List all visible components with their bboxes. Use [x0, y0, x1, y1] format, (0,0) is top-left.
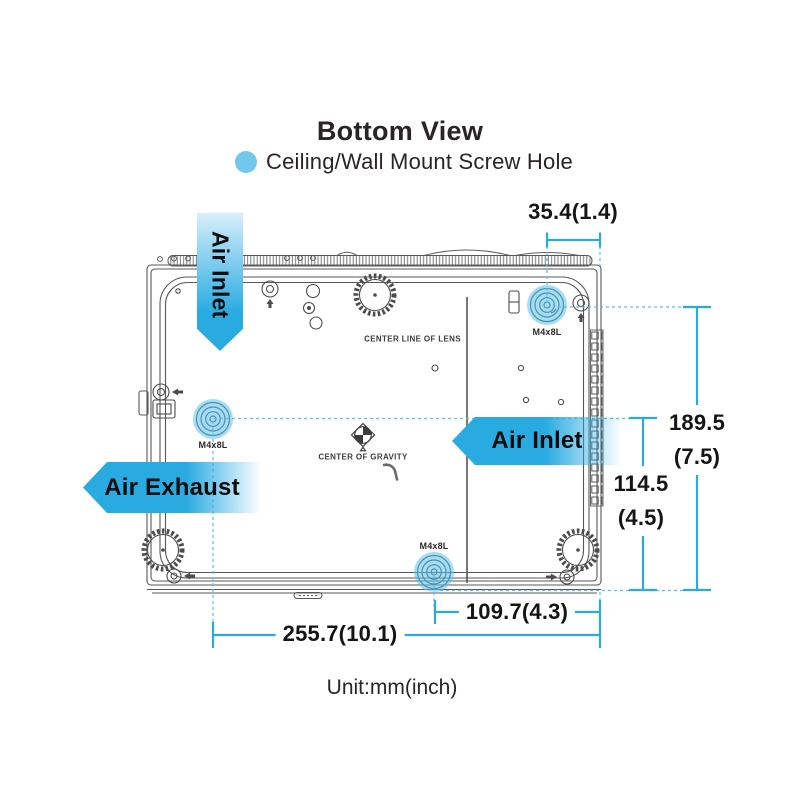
screw-label-bottom: M4x8L [419, 541, 448, 551]
dimension-right-outer-mm: 189.5 [669, 406, 725, 440]
dimension-right-inner-mm: 114.5 [614, 467, 669, 501]
legend: Ceiling/Wall Mount Screw Hole [4, 149, 800, 175]
screw-hole-legend-dot-icon [235, 151, 257, 173]
air-inlet-right-arrow: Air Inlet [452, 417, 622, 465]
dimension-bottom-outer: 255.7(10.1) [276, 616, 405, 652]
center-line-of-lens-label: CENTER LINE OF LENS [364, 335, 461, 344]
air-inlet-right-label: Air Inlet [491, 427, 582, 455]
dimension-bottom-inner: 109.7(4.3) [459, 594, 575, 630]
bottom-view-diagram: Bottom View Ceiling/Wall Mount Screw Hol… [0, 0, 800, 800]
legend-label: Ceiling/Wall Mount Screw Hole [266, 149, 573, 175]
page-title: Bottom View [0, 116, 800, 147]
dimension-right-outer-inch: (7.5) [669, 440, 725, 474]
screw-label-mid-left: M4x8L [198, 440, 227, 450]
center-of-gravity-label: CENTER OF GRAVITY [318, 453, 407, 462]
hex-key-mark [384, 465, 397, 480]
air-exhaust-label: Air Exhaust [104, 474, 240, 502]
unit-note: Unit:mm(inch) [327, 676, 458, 700]
air-inlet-top-arrow: Air Inlet [197, 213, 243, 351]
center-of-gravity-icon [352, 424, 375, 451]
foot-gear-top [356, 276, 394, 314]
screw-label-top-right: M4x8L [532, 327, 561, 337]
air-exhaust-arrow: Air Exhaust [83, 462, 261, 513]
dimension-right-inner-inch: (4.5) [614, 501, 669, 535]
dimension-right-inner: 114.5 (4.5) [607, 466, 676, 536]
dimension-right-outer: 189.5 (7.5) [662, 405, 732, 475]
air-inlet-top-label: Air Inlet [207, 231, 234, 332]
dimension-top-offset: 35.4(1.4) [528, 199, 618, 225]
foot-gear-bottom-right [559, 531, 597, 569]
